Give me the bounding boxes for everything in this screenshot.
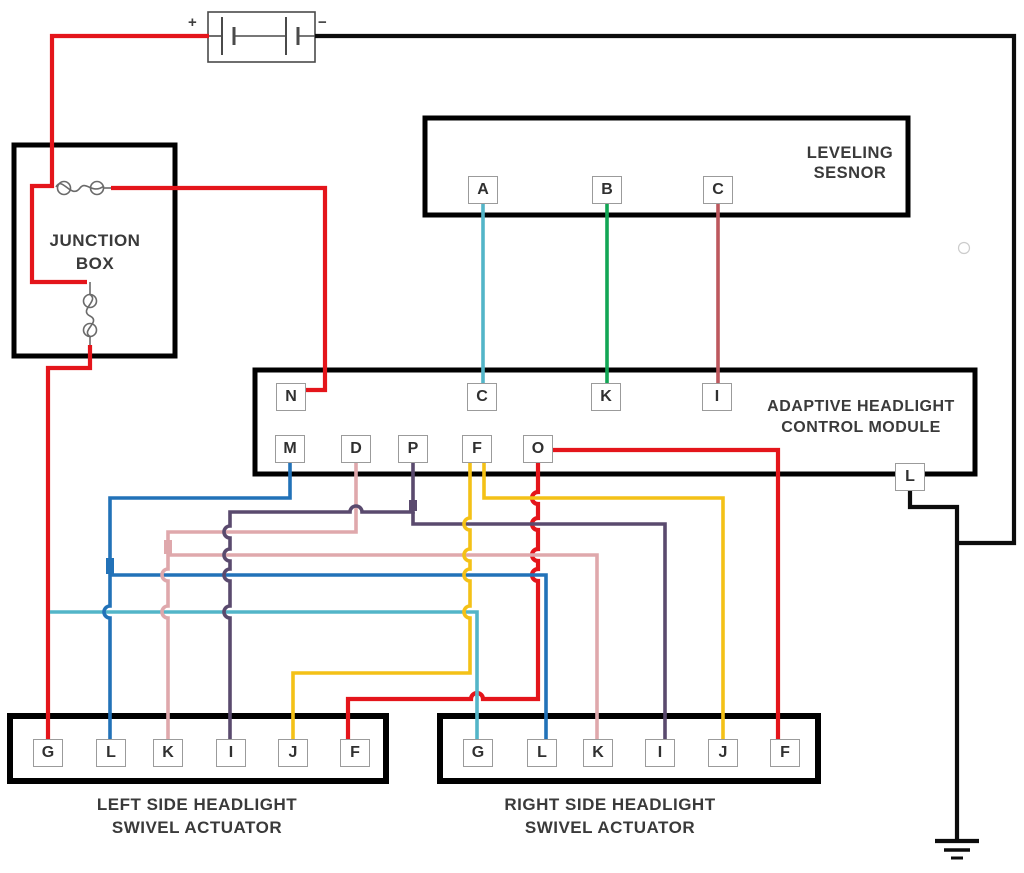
wire-junction-to-left-g bbox=[48, 345, 90, 750]
battery-negative-label: − bbox=[318, 14, 327, 31]
control-module-label: ADAPTIVE HEADLIGHT CONTROL MODULE bbox=[745, 396, 977, 438]
wire-o-to-left-f bbox=[348, 450, 538, 750]
right-actuator-terminal-g: G bbox=[463, 739, 493, 767]
control-module-label-line2: CONTROL MODULE bbox=[745, 417, 977, 438]
junction-box-label-line2: BOX bbox=[20, 252, 170, 275]
junction-box-label-line1: JUNCTION bbox=[20, 229, 170, 252]
wire-battery-to-junction bbox=[52, 36, 209, 188]
module-terminal-m: M bbox=[275, 435, 305, 463]
sensor-terminal-b: B bbox=[592, 176, 622, 204]
right-actuator-terminal-f: F bbox=[770, 739, 800, 767]
wire-junction-to-module-n bbox=[111, 188, 325, 390]
right-actuator-terminal-l: L bbox=[527, 739, 557, 767]
leveling-sensor-label: LEVELING SESNOR bbox=[740, 143, 960, 183]
battery-symbol bbox=[208, 17, 315, 55]
right-actuator-label: RIGHT SIDE HEADLIGHT SWIVEL ACTUATOR bbox=[450, 793, 770, 839]
wiring-diagram: + − JUNCTION BOX LEVELING SESNOR ADAPTIV… bbox=[0, 0, 1024, 873]
right-actuator-label-line1: RIGHT SIDE HEADLIGHT bbox=[450, 793, 770, 816]
wire-o-to-right-f bbox=[545, 450, 778, 750]
module-terminal-f: F bbox=[462, 435, 492, 463]
wire-module-l-ground bbox=[910, 480, 957, 840]
left-actuator-terminal-f: F bbox=[340, 739, 370, 767]
fuse-2-icon bbox=[84, 282, 97, 346]
module-terminal-l: L bbox=[895, 463, 925, 491]
left-actuator-terminal-i: I bbox=[216, 739, 246, 767]
leveling-sensor-label-line1: LEVELING bbox=[740, 143, 960, 163]
wire-f-to-right-j bbox=[484, 450, 723, 750]
module-terminal-n: N bbox=[276, 383, 306, 411]
junction-box-label: JUNCTION BOX bbox=[20, 229, 170, 275]
wire-p-to-left-i bbox=[224, 450, 413, 750]
left-actuator-label-line2: SWIVEL ACTUATOR bbox=[37, 816, 357, 839]
sensor-terminal-c: C bbox=[703, 176, 733, 204]
module-terminal-c: C bbox=[467, 383, 497, 411]
right-actuator-box bbox=[440, 716, 818, 781]
wire-d-to-right-k bbox=[168, 555, 597, 750]
left-actuator-terminal-k: K bbox=[153, 739, 183, 767]
right-actuator-terminal-j: J bbox=[708, 739, 738, 767]
fuse-1-icon bbox=[56, 182, 113, 195]
module-terminal-d: D bbox=[341, 435, 371, 463]
left-actuator-terminal-l: L bbox=[96, 739, 126, 767]
right-actuator-terminal-i: I bbox=[645, 739, 675, 767]
right-actuator-terminal-k: K bbox=[583, 739, 613, 767]
sensor-terminal-a: A bbox=[468, 176, 498, 204]
left-actuator-box bbox=[10, 716, 386, 781]
wire-m-to-right-l bbox=[110, 575, 546, 750]
wire-m-to-left-l bbox=[104, 450, 290, 750]
wire-f-to-left-j bbox=[293, 450, 470, 750]
module-terminal-i: I bbox=[702, 383, 732, 411]
right-actuator-label-line2: SWIVEL ACTUATOR bbox=[450, 816, 770, 839]
module-terminal-k: K bbox=[591, 383, 621, 411]
calibration-dot-icon bbox=[959, 243, 970, 254]
blue-wires bbox=[104, 450, 546, 750]
wire-d-to-left-k bbox=[162, 450, 356, 750]
wire-feed-to-right-g bbox=[50, 612, 477, 750]
leveling-sensor-label-line2: SESNOR bbox=[740, 163, 960, 183]
left-actuator-label-line1: LEFT SIDE HEADLIGHT bbox=[37, 793, 357, 816]
control-module-label-line1: ADAPTIVE HEADLIGHT bbox=[745, 396, 977, 417]
left-actuator-terminal-j: J bbox=[278, 739, 308, 767]
module-terminal-o: O bbox=[523, 435, 553, 463]
left-actuator-label: LEFT SIDE HEADLIGHT SWIVEL ACTUATOR bbox=[37, 793, 357, 839]
battery-positive-label: + bbox=[188, 14, 197, 31]
module-terminal-p: P bbox=[398, 435, 428, 463]
left-actuator-terminal-g: G bbox=[33, 739, 63, 767]
